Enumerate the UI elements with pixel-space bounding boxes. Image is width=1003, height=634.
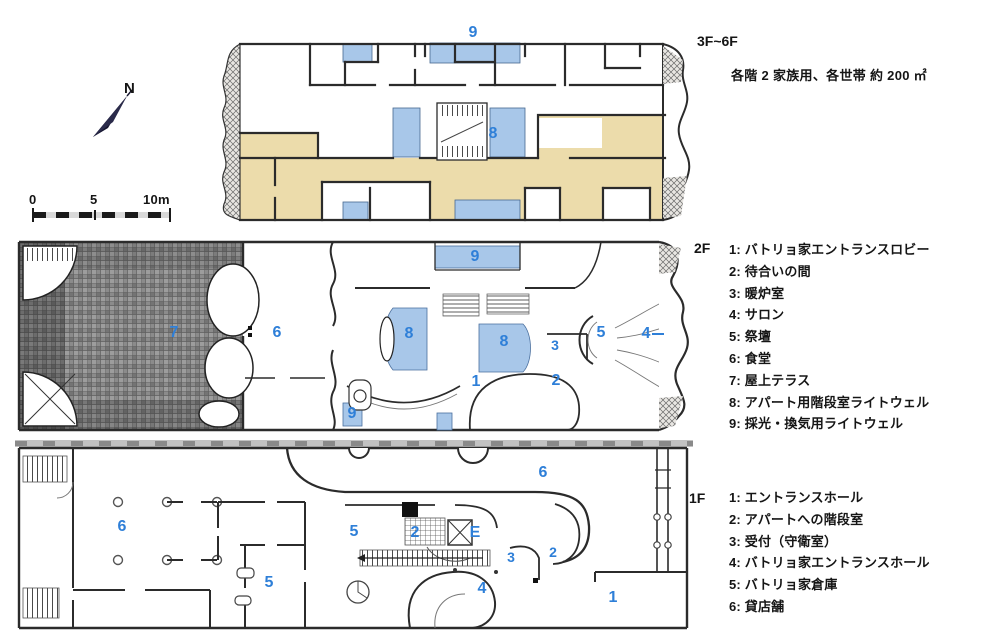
legend-2f-item-5: 5: 祭壇 (729, 326, 930, 348)
legend-1f-item-6: 6: 貸店舗 (729, 596, 930, 618)
upper-floors-note: 各階 2 家族用、各世帯 約 200 ㎡ (731, 65, 927, 84)
plan-1f-label-2-curve: 2 (549, 545, 557, 559)
right-facade-1f (654, 448, 671, 572)
plan-1f-label-3: 3 (507, 550, 515, 564)
plan-2f-label-8-left: 8 (405, 326, 414, 342)
title-upper-floors: 3F~6F (697, 33, 738, 49)
plan-1f-label-5-left: 5 (350, 524, 359, 540)
legend-2f-item-4: 4: サロン (729, 304, 930, 326)
legend-2f-item-9: 9: 採光・換気用ライトウェル (729, 413, 930, 435)
plan-2f-label-1: 1 (472, 374, 481, 390)
plan-1f-label-1: 1 (609, 590, 618, 606)
legend-1f-item-1: 1: エントランスホール (729, 487, 930, 509)
plan-1f-label-elevator: E (470, 525, 481, 541)
stair-core (437, 103, 487, 160)
scale-tick-0: 0 (29, 192, 37, 207)
scale-bar (25, 208, 190, 224)
plan-2f-label-7: 7 (170, 325, 179, 341)
spiral-stair (347, 581, 369, 603)
plan-1f-label-4: 4 (478, 581, 487, 597)
left-stairs (23, 448, 73, 628)
plan-2f-label-9-top: 9 (471, 249, 480, 265)
main-stair-run (357, 550, 490, 566)
plan-1f-label-5-bottom: 5 (265, 575, 274, 591)
plan-1f-label-6-left: 6 (118, 519, 127, 535)
plan-2f-label-6: 6 (273, 325, 282, 341)
title-1f: 1F (689, 490, 705, 506)
compass-label: N (124, 80, 135, 97)
scale-tick-5: 5 (90, 192, 98, 207)
legend-2f-item-8: 8: アパート用階段室ライトウェル (729, 392, 930, 414)
legend-2f: 1: バトリョ家エントランスロビー 2: 待合いの間 3: 暖炉室 4: サロン… (729, 239, 930, 435)
legend-1f-item-5: 5: バトリョ家倉庫 (729, 574, 930, 596)
plan-2f-label-5: 5 (597, 325, 606, 341)
plan-upper-label-9: 9 (469, 25, 478, 41)
plan-2f-label-9-bottom: 9 (348, 406, 357, 422)
legend-2f-item-6: 6: 食堂 (729, 348, 930, 370)
north-arrow-icon (80, 78, 150, 146)
plan-upper-floors (215, 30, 693, 230)
legend-2f-item-2: 2: 待合いの間 (729, 261, 930, 283)
stairs-2f (443, 294, 529, 316)
legend-1f: 1: エントランスホール 2: アパートへの階段室 3: 受付（守衛室） 4: … (729, 487, 930, 618)
plan-2f-label-4: 4 (642, 326, 651, 342)
batllo-hall-walls (409, 568, 538, 628)
title-2f: 2F (694, 240, 710, 256)
plan-2f-label-8-right: 8 (500, 334, 509, 350)
floor-plan-sheet: N 0 5 10m (0, 0, 1003, 634)
legend-2f-item-7: 7: 屋上テラス (729, 370, 930, 392)
plan-1f-label-6-right: 6 (539, 465, 548, 481)
plan-1f-label-2-stair: 2 (411, 525, 420, 541)
scale-tick-10m: 10m (143, 192, 170, 207)
entrance-notches (349, 448, 488, 463)
plan-2f-label-3: 3 (551, 338, 559, 352)
legend-2f-item-1: 1: バトリョ家エントランスロビー (729, 239, 930, 261)
shop-columns (114, 498, 222, 565)
legend-1f-item-4: 4: バトリョ家エントランスホール (729, 552, 930, 574)
legend-1f-item-3: 3: 受付（守衛室） (729, 531, 930, 553)
stone-facade-left (223, 44, 240, 220)
plan-2f-label-2: 2 (552, 373, 561, 389)
legend-2f-item-3: 3: 暖炉室 (729, 283, 930, 305)
plan-upper-label-8: 8 (489, 126, 498, 142)
legend-1f-item-2: 2: アパートへの階段室 (729, 509, 930, 531)
